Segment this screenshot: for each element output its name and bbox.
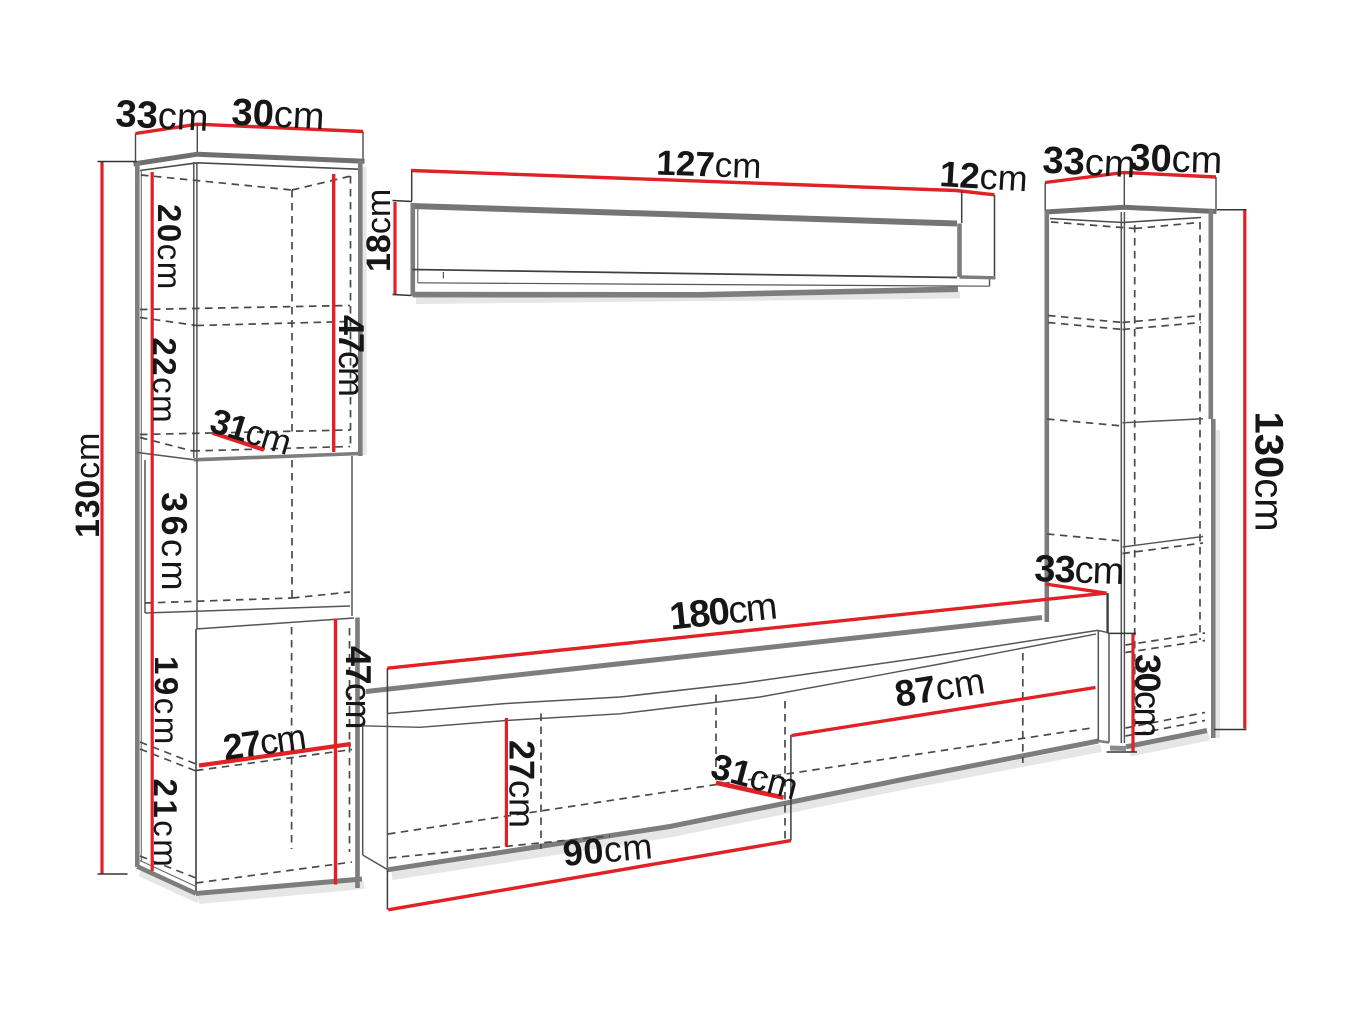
svg-text:130cm: 130cm bbox=[69, 432, 107, 538]
svg-text:20cm: 20cm bbox=[151, 204, 188, 291]
svg-text:30cm: 30cm bbox=[231, 92, 326, 139]
svg-text:30cm: 30cm bbox=[1129, 137, 1223, 182]
svg-text:36cm: 36cm bbox=[154, 492, 195, 594]
svg-text:30cm: 30cm bbox=[1128, 654, 1169, 736]
svg-text:33cm: 33cm bbox=[1034, 548, 1124, 593]
svg-text:47cm: 47cm bbox=[331, 315, 372, 395]
svg-text:33cm: 33cm bbox=[115, 93, 210, 140]
svg-text:12cm: 12cm bbox=[939, 153, 1029, 199]
svg-text:47cm: 47cm bbox=[338, 646, 379, 728]
svg-text:130cm: 130cm bbox=[1246, 412, 1290, 532]
svg-text:19cm: 19cm bbox=[148, 656, 185, 747]
svg-text:27cm: 27cm bbox=[502, 740, 543, 828]
svg-text:21cm: 21cm bbox=[147, 779, 184, 870]
svg-text:33cm: 33cm bbox=[1042, 140, 1137, 187]
svg-text:22cm: 22cm bbox=[146, 337, 183, 424]
svg-text:90cm: 90cm bbox=[561, 825, 654, 874]
svg-text:127cm: 127cm bbox=[656, 144, 762, 187]
svg-text:18cm: 18cm bbox=[360, 189, 398, 272]
